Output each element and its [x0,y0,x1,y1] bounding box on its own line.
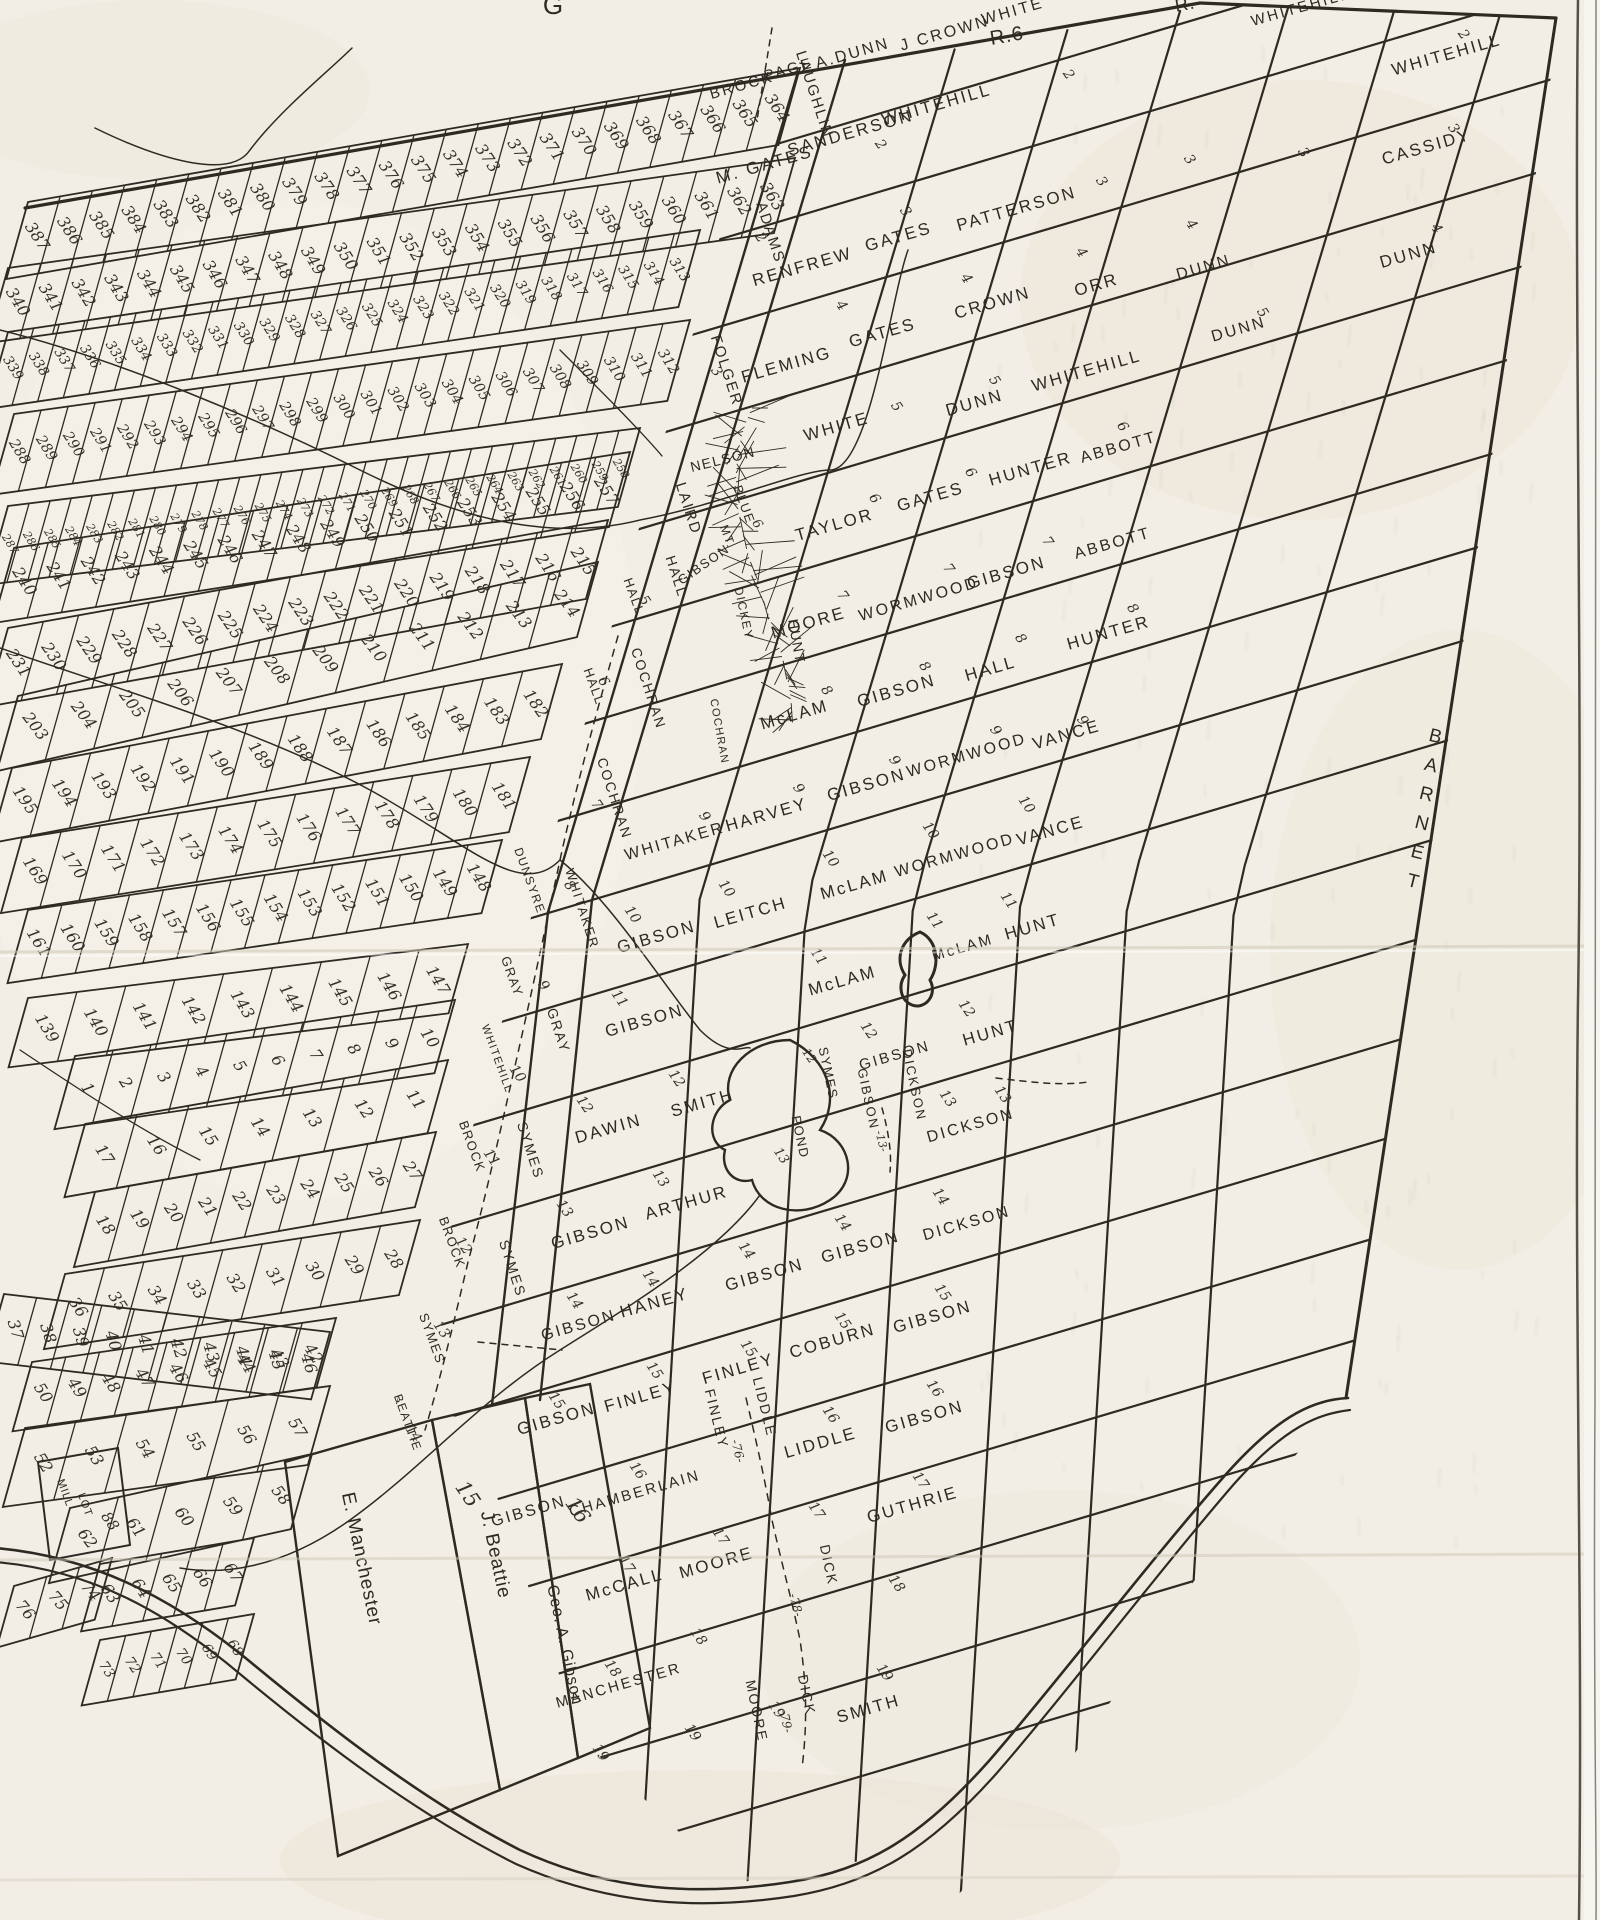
leftcol-strip-name: BROCK [456,1119,488,1175]
lot-family-name: GIBSON [825,764,908,805]
range-mark: 14 [735,1239,758,1263]
tier-strip-name: LAIRD [672,480,705,537]
range-mark: 4 [957,270,976,287]
range-mark: 11 [997,889,1020,913]
lot-family-name: COBURN [787,1319,877,1362]
lot-family-name: FLEMING [739,343,834,387]
special-number: 13 [770,1145,792,1167]
range-mark: 7 [1038,534,1056,550]
mountain-label: NELSON [689,443,757,475]
pond-label: SYMES [816,1046,842,1101]
lot-family-name: LIDDLE [782,1423,859,1462]
lot-number: 70 [172,1645,195,1669]
lot-number: 66 [189,1564,216,1591]
lot-number: 17 [91,1141,119,1169]
lot-number: 39 [69,1324,93,1349]
lot-family-name: GIBSON [723,1254,806,1295]
lot-family-name: GIBSON [891,1296,974,1337]
lot-number: 38 [36,1321,60,1346]
lot-family-name: GIBSON [855,670,938,711]
scanned-plat-map-page: 3873863853843833823813803793783773763753… [0,0,1600,1920]
mountain-label: GIBSON [675,541,732,587]
map-line [194,1476,215,1551]
lot-number: 29 [340,1251,368,1279]
lot-family-name: HUNTER [987,448,1075,490]
map-line [707,477,736,486]
map-line [146,1486,167,1561]
range-mark: 12 [573,1093,596,1117]
map-line [155,1407,177,1486]
range-mark: 9 [789,781,807,797]
range-mark: 11 [923,909,946,933]
lot-family-name: GATES [863,218,934,255]
range-mark: 10 [621,903,644,927]
lot-number: 34 [144,1281,171,1308]
lot-number: 71 [147,1649,170,1672]
range-mark: 15 [643,1359,666,1383]
lot-family-name: SMITH [668,1085,736,1121]
lot-number: 36 [65,1293,92,1320]
lot-family-name: McLAM [758,696,831,734]
map-line [748,417,765,422]
lot-family-name: MOORE [769,603,848,642]
map-line [713,431,743,438]
mountain-label: COCHRAN [707,698,730,765]
lot-number: 28 [380,1245,408,1273]
lot-number: 60 [171,1503,198,1531]
lot-family-name: VANCE [1014,812,1086,850]
plat-map-scan: 3873863853843833823813803793783773763753… [0,0,1600,1920]
lot-family-name: McLAM [818,866,891,904]
lot-number: 31 [262,1263,289,1290]
lot-number: 32 [223,1269,250,1296]
road-number: -76- [728,1438,747,1464]
range-mark: 7 [939,561,957,577]
range-mark: 13 [649,1167,672,1191]
lot-number: 57 [284,1414,311,1442]
map-line [767,577,779,610]
range-mark: 16 [923,1377,946,1401]
range-mark: 16 [819,1403,842,1427]
range-mark: 12 [665,1067,688,1091]
range-mark: 19 [681,1721,704,1745]
top-town-fragment: G [543,0,569,20]
map-line [257,1393,279,1472]
map-line [750,657,782,661]
map-line [753,566,802,571]
range-mark: 2 [1059,66,1078,83]
lot-number: 62 [74,1525,101,1553]
range-mark: 12 [955,997,978,1021]
lot-family-name: DICKSON [925,1105,1017,1146]
lot-number: 72 [121,1654,144,1677]
map-line [736,467,786,468]
lot-family-name: HARVEY [723,794,810,836]
lot-family-name: WHITEHILL [1389,30,1503,79]
range-mark: 6 [961,465,979,481]
range-mark: 17 [709,1525,732,1549]
lot-family-name: A.DUNN [814,35,892,72]
small-pond [900,932,936,1006]
lot-family-name: GIBSON [819,1226,902,1267]
map-line [206,1400,228,1479]
map-line [750,395,792,413]
range-mark: 12 [857,1019,880,1043]
lot-number: 312 [654,346,682,377]
lot-number: 30 [302,1257,329,1284]
range-mark: 16 [626,1459,649,1483]
parcel-name: Geo. A. Gibson [543,1583,585,1706]
range-mark: 5 [887,399,905,415]
lot-family-name: HALL [963,652,1019,685]
lot-family-name: TAYLOR [793,504,876,544]
range-partial-label: R. [1173,0,1196,16]
lot-family-name: DICKSON [921,1203,1013,1244]
mountain-label: DICKEY [731,585,756,640]
lot-family-name: CROWN [952,283,1033,323]
lot-number: 65 [158,1569,185,1596]
lot-number: 364 [761,90,794,126]
range-mark: 8 [1011,631,1029,647]
map-line [745,541,794,545]
range-mark: 10 [1015,793,1038,817]
map-line [789,686,805,687]
lot-family-name-vertical: FINLEY [702,1387,732,1450]
range-mark: 13 [553,1197,576,1221]
range-mark: 14 [639,1267,662,1291]
tier-strip-name: SYMES [496,1238,529,1299]
lot-family-name: ARTHUR [643,1182,730,1224]
lot-family-name: MOORE [677,1543,756,1582]
map-line [243,1465,264,1540]
range-mark: 3 [896,204,914,220]
lot-number: 35 [104,1287,131,1314]
lot-family-name: DUNN [943,385,1005,420]
lot-family-name: HUNT [1002,910,1062,944]
lot-number: 52 [30,1449,57,1476]
map-line [712,513,738,525]
lot-family-name: RENFREW [750,243,855,290]
range-mark: 13 [936,1087,959,1111]
range-six-label: R.6 [988,22,1025,50]
lot-number: 55 [183,1428,210,1455]
lot-number: 37 [4,1317,28,1343]
map-line [790,690,806,698]
lot-family-name: FINLEY [602,1377,679,1416]
map-line [763,614,768,634]
tier-strip-name: ADAMS [752,200,788,265]
dashed-divider [478,1342,562,1350]
lot-number: 73 [95,1658,118,1681]
lot-family-name: ABBOTT [1072,525,1153,563]
range-mark: 14 [831,1211,854,1235]
range-mark: 4 [832,297,851,314]
lot-number: 67 [220,1559,248,1587]
blue-mt-hachures [705,395,813,733]
lot-number: 56 [233,1421,260,1448]
lot-family-name: GIBSON [883,1396,966,1437]
lot-number: 33 [183,1275,210,1302]
range-mark: 2 [871,136,890,153]
lot-family-name: WORMWOOD [905,730,1029,781]
range-mark: 13 [991,1083,1014,1107]
lot-number: 54 [132,1435,159,1462]
parcel-name: MILL [54,1478,75,1509]
range-mark: 7 [833,588,851,604]
special-number: 15 [450,1476,485,1512]
map-line [737,464,747,480]
lot-number: 53 [81,1442,108,1469]
range-mark: 11 [608,987,631,1011]
range-mark: 14 [929,1185,952,1209]
range-mark: 10 [715,877,738,901]
map-line [743,536,754,551]
lot-number: 59 [219,1492,246,1520]
lot-family-name: WORMWOOD [857,574,981,625]
lot-number: 313 [666,255,693,285]
lot-family-name: LEITCH [712,893,790,932]
lot-family-name: GATES [847,314,918,351]
paper-stains [0,0,1600,1920]
lot-family-name: WHITEHILL [879,80,993,129]
map-line [105,1414,127,1493]
special-number: 88 [97,1508,123,1534]
map-line [761,682,791,699]
map-line [758,550,763,583]
range-mark: 14 [563,1289,586,1313]
range-mark: 10 [919,819,942,843]
